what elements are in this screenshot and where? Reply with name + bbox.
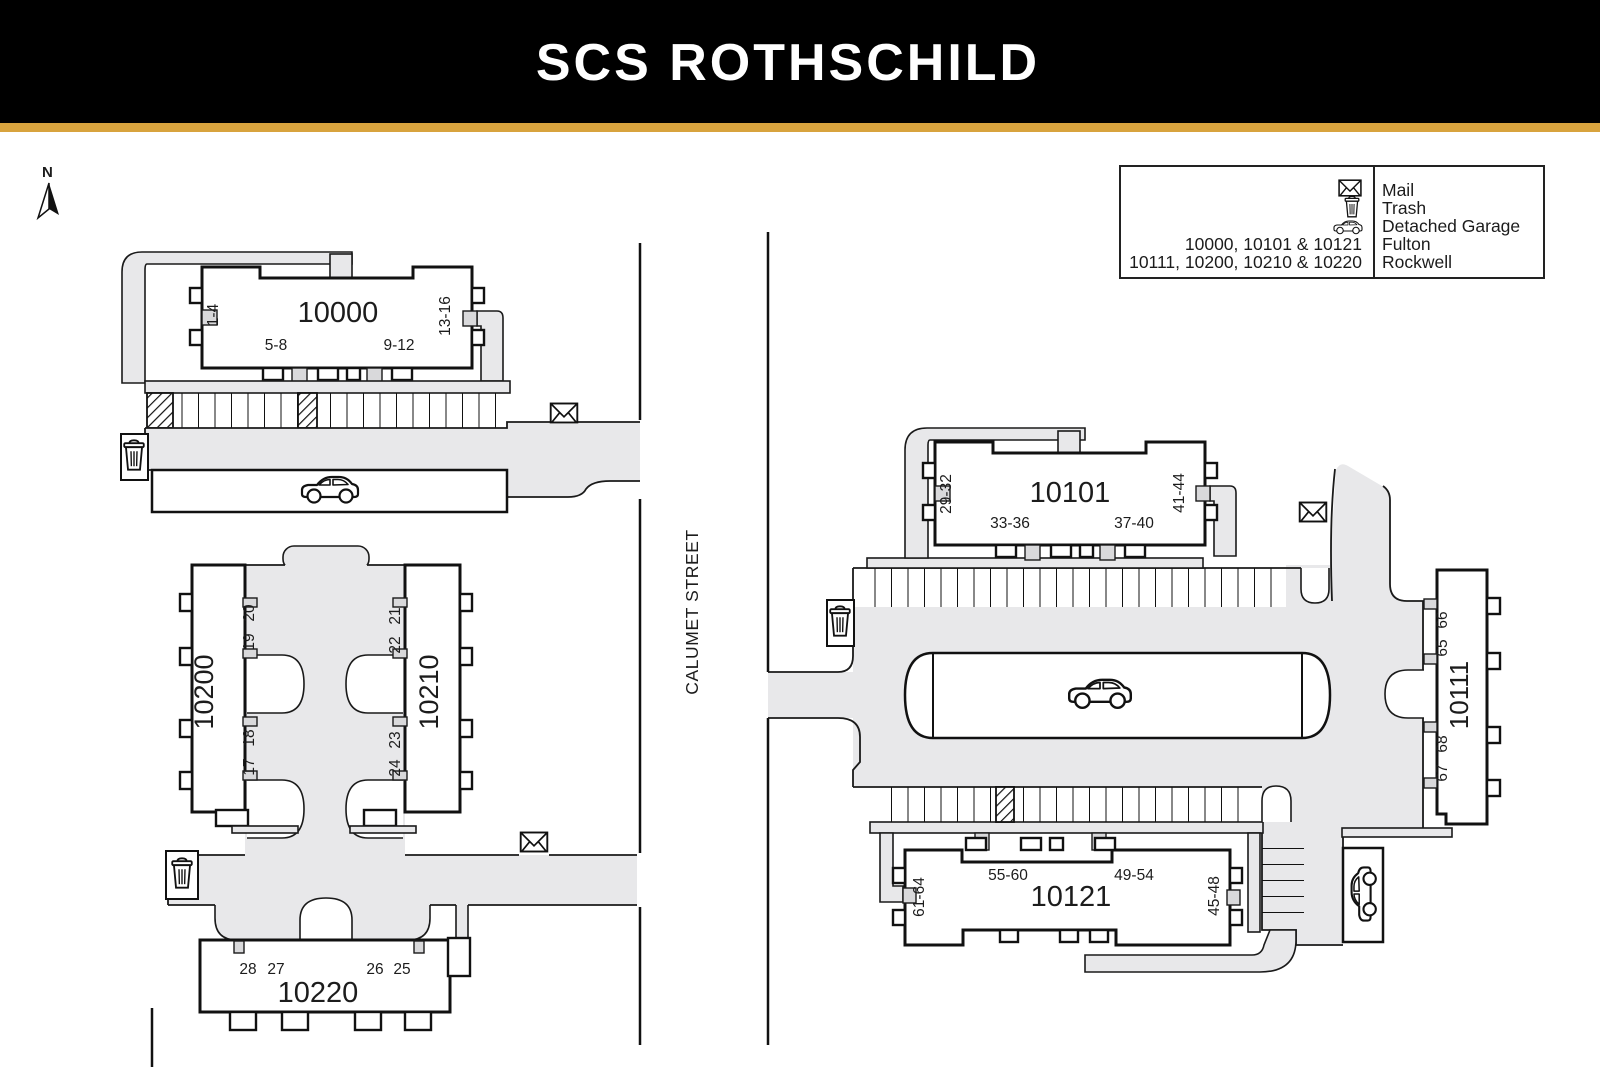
curb-bar <box>870 822 1263 833</box>
building-10200-tab <box>180 594 192 611</box>
trash-icon <box>124 440 144 469</box>
building-10210-tab <box>460 772 472 789</box>
stall-end-lobe <box>1301 568 1329 603</box>
building-10220-step <box>448 938 470 976</box>
building-10220-label: 10220 <box>278 977 359 1009</box>
page-title: SCS ROTHSCHILD <box>536 34 1040 92</box>
building-10121-tab <box>1021 838 1041 850</box>
building-10101-area: 10101 29-32 41-44 33-36 37-40 <box>905 428 1327 560</box>
building-10000-tab <box>472 288 484 303</box>
unit-21: 21 <box>387 607 404 624</box>
units-55-60: 55-60 <box>988 867 1028 884</box>
building-10101-tab <box>1205 463 1217 478</box>
curb-bar <box>145 381 510 393</box>
header: SCS ROTHSCHILD <box>0 0 1600 132</box>
porch-notch <box>247 655 304 713</box>
parking-lot-west <box>121 381 640 512</box>
side-parking-stalls <box>1262 840 1304 918</box>
porch-bump <box>300 898 352 942</box>
legend-fulton-buildings: 10000, 10101 & 10121 <box>1185 234 1362 254</box>
building-10220-tab <box>405 1012 431 1030</box>
entry-stub <box>243 717 257 726</box>
unit-23: 23 <box>387 731 404 748</box>
units-13-16: 13-16 <box>437 296 454 336</box>
unit-26: 26 <box>366 961 383 978</box>
units-41-44: 41-44 <box>1171 473 1188 513</box>
unit-24: 24 <box>387 759 404 777</box>
building-10101-tab <box>1205 505 1217 520</box>
building-10101-tab <box>923 463 935 478</box>
hatched-stall <box>298 393 317 428</box>
unit-28: 28 <box>239 961 256 978</box>
building-10210-tab <box>364 810 396 826</box>
walkway-band <box>168 855 637 905</box>
building-10220-tab <box>282 1012 308 1030</box>
entry-stub <box>463 311 477 326</box>
units-33-36: 33-36 <box>990 515 1030 532</box>
building-10121-tab <box>1050 838 1063 850</box>
unit-68: 68 <box>1434 735 1451 752</box>
building-10000-tab <box>190 330 202 345</box>
building-10101-tab <box>996 545 1016 557</box>
entry-stub <box>393 598 407 607</box>
building-10121-tab <box>1230 910 1242 925</box>
building-10000-tab <box>318 368 338 380</box>
units-1-4: 1-4 <box>205 303 222 326</box>
building-10210-tab <box>460 594 472 611</box>
building-10121-label: 10121 <box>1031 881 1112 913</box>
entry-stub <box>1100 545 1115 560</box>
unit-20: 20 <box>241 604 258 622</box>
street-name-label: CALUMET STREET <box>682 529 702 695</box>
building-10121-area: 10121 61-64 45-48 55-60 49-54 <box>880 833 1296 972</box>
legend-label-trash: Trash <box>1382 198 1426 218</box>
units-5-8: 5-8 <box>265 337 287 354</box>
legend-label-mail: Mail <box>1382 180 1414 200</box>
porch-notch <box>346 655 403 713</box>
entry-stub <box>1424 722 1437 732</box>
unit-17: 17 <box>241 758 258 775</box>
building-10101-tab <box>1051 545 1071 557</box>
building-10220-area: 10220 28 27 26 25 <box>166 831 637 1030</box>
building-10220-tab <box>230 1012 256 1030</box>
building-10000-tab <box>347 368 360 380</box>
trash-icon <box>1345 196 1359 216</box>
stair-10000 <box>330 254 352 278</box>
legend: 10000, 10101 & 10121 10111, 10200, 10210… <box>1120 166 1544 278</box>
building-10200-tab <box>180 772 192 789</box>
building-10121-tab <box>1060 930 1078 942</box>
building-10101-label: 10101 <box>1030 477 1111 509</box>
porch-bump <box>1385 670 1424 718</box>
building-10111-tab <box>1487 780 1500 796</box>
units-45-48: 45-48 <box>1206 876 1223 916</box>
entry-stub <box>1196 486 1210 501</box>
building-10210-tab <box>460 720 472 737</box>
parking-stalls <box>174 393 502 428</box>
building-10121-tab <box>966 838 986 850</box>
building-10220-tab <box>355 1012 381 1030</box>
building-10121-tab <box>1230 868 1242 883</box>
walk-stub <box>232 826 298 833</box>
trash-icon <box>830 606 850 635</box>
unit-66: 66 <box>1434 611 1451 628</box>
building-10000-tab <box>472 330 484 345</box>
building-10111-tab <box>1487 598 1500 614</box>
building-10000-tab <box>263 368 283 380</box>
building-10000-tab <box>392 368 412 380</box>
unit-65: 65 <box>1434 639 1451 656</box>
unit-18: 18 <box>241 729 258 746</box>
unit-22: 22 <box>387 636 404 653</box>
building-10111-tab <box>1487 653 1500 669</box>
header-gold-rule <box>0 123 1600 132</box>
building-10121-tab <box>1090 930 1108 942</box>
stair-10101 <box>1058 431 1080 453</box>
site-map-page: SCS ROTHSCHILD N 10000, 10101 & 10121 10… <box>0 0 1600 1067</box>
buildings-10200-10210-area: 10200 10210 20 19 18 17 21 22 23 24 <box>180 546 472 855</box>
building-10000-label: 10000 <box>298 297 379 329</box>
hatched-stall <box>147 393 173 428</box>
hatched-stall <box>996 787 1014 822</box>
walk-stub <box>350 826 416 833</box>
legend-rockwell-buildings: 10111, 10200, 10210 & 10220 <box>1129 252 1362 272</box>
entry-stub <box>1025 545 1040 560</box>
building-10000-tab <box>190 288 202 303</box>
compass-arrow-right <box>49 183 59 215</box>
north-arrow-icon: N <box>38 164 59 218</box>
unit-19: 19 <box>241 633 258 650</box>
entry-stub <box>234 941 244 953</box>
site-map: SCS ROTHSCHILD N 10000, 10101 & 10121 10… <box>0 0 1600 1067</box>
building-10000-area: 10000 1-4 13-16 5-8 9-12 <box>122 252 503 383</box>
trash-icon <box>172 858 192 887</box>
building-10121-tab <box>893 868 905 883</box>
entry-stub <box>393 717 407 726</box>
unit-67: 67 <box>1434 764 1451 781</box>
building-10111-tab <box>1487 727 1500 743</box>
legend-label-rockwell: Rockwell <box>1382 252 1452 272</box>
building-10121-tab <box>1095 838 1115 850</box>
building-10101-tab <box>1125 545 1145 557</box>
entry-stub <box>1424 599 1437 609</box>
building-10200-label: 10200 <box>189 654 219 729</box>
units-61-64: 61-64 <box>911 877 928 917</box>
walkway-10121-east <box>1248 833 1260 932</box>
units-9-12: 9-12 <box>383 337 414 354</box>
building-10101-tab <box>1080 545 1093 557</box>
building-10210-tab <box>460 648 472 665</box>
entry-stub <box>1227 890 1240 905</box>
mail-icon <box>551 404 578 423</box>
mail-icon <box>521 833 548 852</box>
legend-label-detached-garage: Detached Garage <box>1382 216 1520 236</box>
units-37-40: 37-40 <box>1114 515 1154 532</box>
mail-icon <box>1339 180 1361 196</box>
lot-entry-fill <box>768 672 860 718</box>
walkway-10111-south <box>1342 828 1452 837</box>
building-10121-tab <box>1000 930 1018 942</box>
building-10210-label: 10210 <box>414 654 444 729</box>
unit-27: 27 <box>267 961 284 978</box>
building-10111-label: 10111 <box>1444 661 1474 729</box>
units-49-54: 49-54 <box>1114 867 1154 884</box>
building-10101-tab <box>923 505 935 520</box>
building-10121-tab <box>893 910 905 925</box>
north-road-fill <box>1330 464 1424 828</box>
parking-stalls <box>880 787 1246 822</box>
units-29-32: 29-32 <box>938 474 955 514</box>
compass-north-label: N <box>42 164 53 181</box>
legend-label-fulton: Fulton <box>1382 234 1431 254</box>
entry-stub <box>414 941 424 953</box>
unit-25: 25 <box>393 961 410 978</box>
compass-arrow-left <box>38 183 49 218</box>
building-10200-tab <box>216 810 248 826</box>
parking-stalls <box>872 568 1286 607</box>
mail-icon <box>1300 503 1327 522</box>
stall-end-dome <box>1262 786 1291 822</box>
